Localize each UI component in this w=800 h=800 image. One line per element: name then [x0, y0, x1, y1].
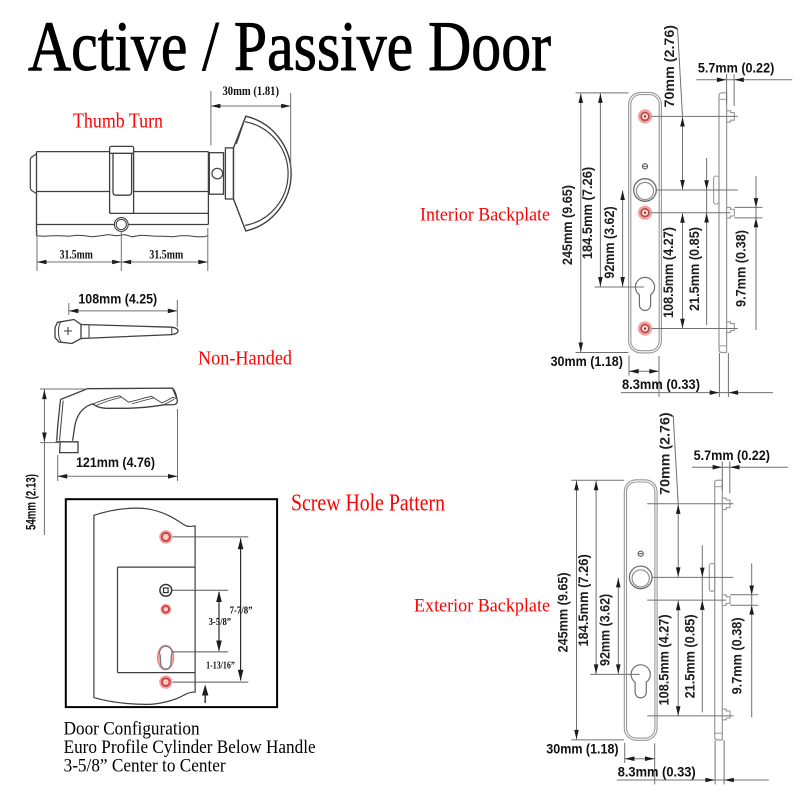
- svg-text:8.3mm (0.33): 8.3mm (0.33): [622, 376, 700, 392]
- svg-text:31.5mm: 31.5mm: [149, 248, 183, 262]
- svg-text:1-13/16”: 1-13/16”: [206, 661, 235, 672]
- svg-text:108mm (4.25): 108mm (4.25): [78, 290, 157, 306]
- svg-text:92mm (3.62): 92mm (3.62): [597, 594, 613, 666]
- svg-text:54mm (2.13): 54mm (2.13): [22, 474, 38, 530]
- svg-text:8.3mm (0.33): 8.3mm (0.33): [618, 763, 696, 779]
- svg-text:70mm (2.76): 70mm (2.76): [661, 25, 677, 108]
- svg-text:70mm (2.76): 70mm (2.76): [657, 412, 673, 495]
- svg-text:21.5mm (0.85): 21.5mm (0.85): [686, 227, 702, 311]
- svg-text:121mm (4.76): 121mm (4.76): [76, 454, 155, 470]
- svg-text:184.5mm (7.26): 184.5mm (7.26): [579, 167, 595, 259]
- svg-text:108.5mm (4.27): 108.5mm (4.27): [660, 227, 676, 318]
- svg-text:3-5/8”: 3-5/8”: [209, 617, 232, 628]
- svg-text:245mm (9.65): 245mm (9.65): [559, 185, 575, 265]
- svg-text:7-7/8”: 7-7/8”: [230, 605, 253, 616]
- svg-text:9.7mm (0.38): 9.7mm (0.38): [728, 617, 744, 694]
- svg-text:30mm (1.81): 30mm (1.81): [223, 83, 280, 98]
- svg-text:9.7mm (0.38): 9.7mm (0.38): [733, 230, 749, 307]
- svg-text:245mm (9.65): 245mm (9.65): [555, 572, 571, 652]
- svg-text:31.5mm: 31.5mm: [60, 248, 94, 262]
- svg-text:Screw Hole Pattern: Screw Hole Pattern: [291, 491, 445, 517]
- svg-text:5.7mm (0.22): 5.7mm (0.22): [694, 447, 770, 463]
- svg-text:5.7mm (0.22): 5.7mm (0.22): [698, 60, 774, 76]
- svg-text:21.5mm (0.85): 21.5mm (0.85): [682, 614, 698, 698]
- svg-text:184.5mm (7.26): 184.5mm (7.26): [575, 554, 591, 646]
- svg-text:Active / Passive Door: Active / Passive Door: [28, 8, 551, 86]
- svg-text:3-5/8” Center to Center: 3-5/8” Center to Center: [64, 756, 227, 777]
- svg-text:92mm (3.62): 92mm (3.62): [601, 206, 617, 278]
- svg-text:Non-Handed: Non-Handed: [198, 349, 292, 370]
- svg-text:30mm (1.18): 30mm (1.18): [546, 740, 618, 756]
- svg-text:Interior Backplate: Interior Backplate: [420, 205, 550, 226]
- svg-text:30mm (1.18): 30mm (1.18): [551, 353, 623, 369]
- svg-text:108.5mm (4.27): 108.5mm (4.27): [656, 614, 672, 705]
- svg-text:Thumb Turn: Thumb Turn: [73, 109, 163, 133]
- svg-text:Exterior Backplate: Exterior Backplate: [414, 596, 550, 617]
